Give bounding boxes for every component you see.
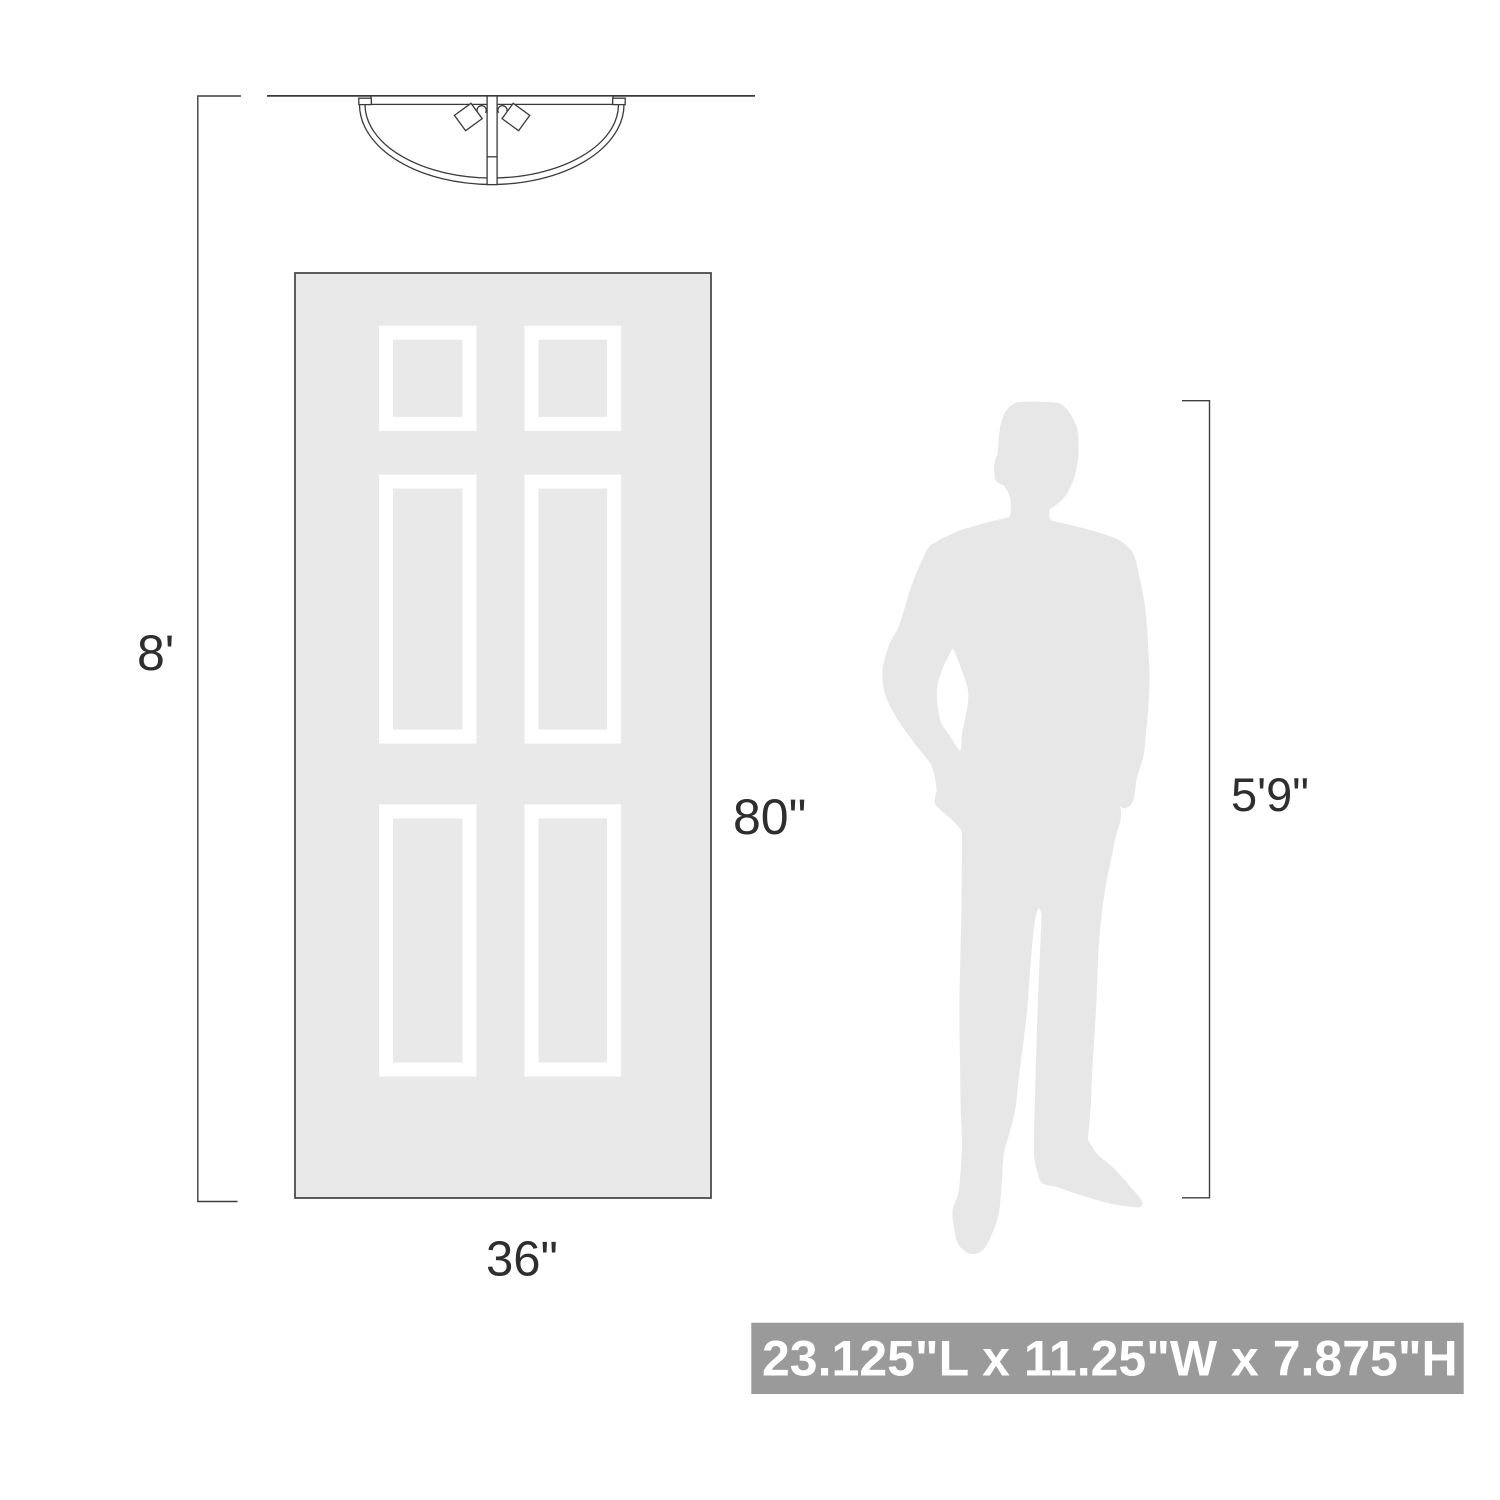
svg-text:23.125"L x 11.25"W x 7.875"H: 23.125"L x 11.25"W x 7.875"H — [762, 1331, 1458, 1387]
svg-text:5'9": 5'9" — [1231, 768, 1309, 821]
svg-text:36": 36" — [486, 1233, 558, 1287]
svg-text:8': 8' — [137, 625, 174, 681]
svg-text:80": 80" — [733, 789, 806, 845]
